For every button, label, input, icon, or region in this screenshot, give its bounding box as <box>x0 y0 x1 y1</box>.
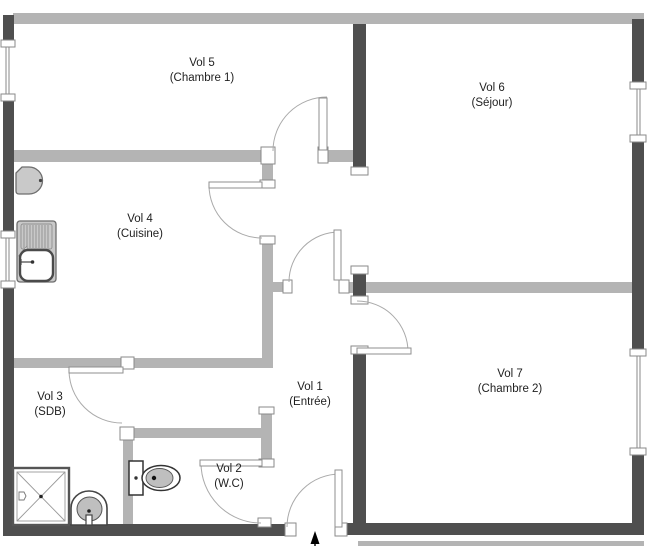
wall-top <box>13 13 644 24</box>
window-chambre1-icon <box>6 47 9 95</box>
wall-post <box>353 272 366 298</box>
walls-dark <box>3 15 644 536</box>
washbasin-icon <box>71 491 107 525</box>
shower-icon <box>13 468 69 525</box>
room-label-vol5: Vol 5 (Chambre 1) <box>170 56 235 86</box>
room-label-vol3: Vol 3 (SDB) <box>34 390 65 420</box>
wall-chambre1-cuisine <box>14 150 262 162</box>
room-label-vol1: Vol 1 (Entrée) <box>289 380 331 410</box>
window-chambre2-icon <box>637 356 640 449</box>
window-cuisine-icon <box>6 238 9 282</box>
balcony-edge <box>358 541 644 546</box>
room-label-vol2: Vol 2 (W.C) <box>214 462 243 492</box>
room-label-vol4: Vol 4 (Cuisine) <box>117 212 163 242</box>
north-arrow-icon <box>311 531 320 546</box>
wall-sejour-west <box>353 24 366 168</box>
wall-entree-chambre2 <box>353 353 366 524</box>
toilet-icon <box>129 461 180 495</box>
floor-plan-drawing <box>0 0 651 546</box>
wall-wc-north <box>133 428 263 438</box>
room-label-vol7: Vol 7 (Chambre 2) <box>478 367 543 397</box>
floor-plan: Vol 5 (Chambre 1) Vol 6 (Séjour) Vol 4 (… <box>0 0 651 546</box>
door-cuisine-icon <box>209 182 262 238</box>
wall-sejour-chambre2 <box>348 282 632 293</box>
wall-cuisine-east <box>262 244 273 367</box>
door-chambre1-icon <box>273 97 327 151</box>
door-entrance-icon <box>287 470 342 527</box>
fixtures <box>13 167 320 546</box>
wall-cuisine-south <box>14 358 273 368</box>
wall-left <box>3 15 14 41</box>
window-sejour-icon <box>637 89 640 136</box>
wall-right <box>632 19 644 83</box>
walls-light <box>13 13 644 546</box>
kitchen-sink-icon <box>17 221 56 282</box>
door-corridor-icon <box>289 230 341 282</box>
door-sdb-icon <box>69 367 123 423</box>
room-label-vol6: Vol 6 (Séjour) <box>472 81 513 111</box>
water-heater-icon <box>16 167 43 194</box>
